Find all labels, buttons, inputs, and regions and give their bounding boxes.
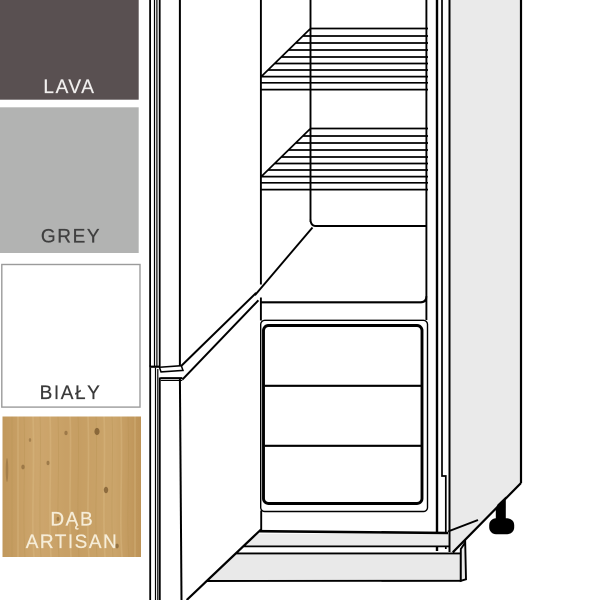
- svg-text:BIAŁY: BIAŁY: [40, 383, 102, 404]
- svg-text:DĄB: DĄB: [50, 509, 94, 530]
- svg-text:ARTISAN: ARTISAN: [26, 532, 119, 553]
- svg-text:LAVA: LAVA: [43, 77, 95, 98]
- svg-text:GREY: GREY: [41, 227, 101, 248]
